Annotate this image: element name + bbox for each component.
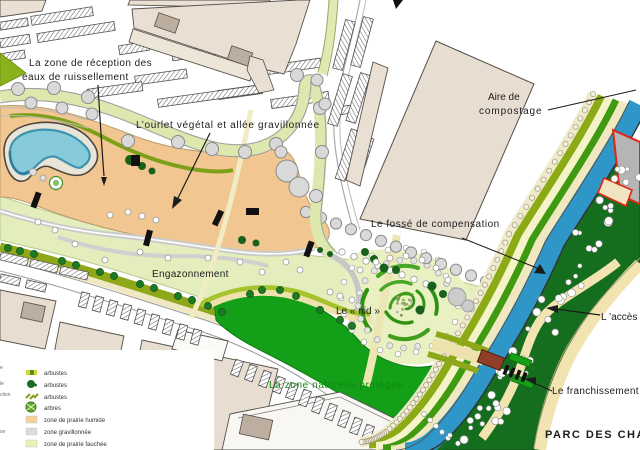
svg-text:e: e — [0, 365, 3, 371]
svg-text:Le franchissement: Le franchissement — [552, 386, 639, 397]
svg-text:Aire de: Aire de — [488, 92, 520, 103]
svg-text:arbustes: arbustes — [44, 371, 67, 377]
svg-text:le: le — [0, 381, 4, 387]
svg-text:ction: ction — [0, 392, 11, 398]
svg-text:arbustes: arbustes — [44, 383, 67, 389]
svg-text:se: se — [0, 429, 6, 435]
svg-text:zone de prairie humide: zone de prairie humide — [44, 418, 106, 424]
svg-text:La zone naturelle protégée: La zone naturelle protégée — [269, 380, 404, 391]
svg-text:zone gravillonnée: zone gravillonnée — [44, 430, 92, 436]
svg-text:arbustes: arbustes — [44, 395, 67, 401]
svg-text:L’ourlet végétal et allée grav: L’ourlet végétal et allée gravillonnée — [136, 120, 320, 131]
svg-text:arbres: arbres — [44, 406, 61, 412]
svg-text:eaux de ruissellement: eaux de ruissellement — [22, 72, 129, 83]
svg-text:compostage: compostage — [479, 106, 542, 117]
svg-text:PARC DES CHANTI: PARC DES CHANTI — [545, 429, 640, 441]
svg-text:Engazonnement: Engazonnement — [152, 269, 229, 280]
svg-text:L ’accès: L ’accès — [601, 312, 637, 323]
svg-text:zone de prairie fauchée: zone de prairie fauchée — [44, 442, 107, 448]
svg-text:La zone de réception des: La zone de réception des — [29, 58, 152, 69]
svg-text:Le « nid »: Le « nid » — [336, 306, 380, 317]
svg-text:Le fossé de compensation: Le fossé de compensation — [371, 219, 500, 230]
